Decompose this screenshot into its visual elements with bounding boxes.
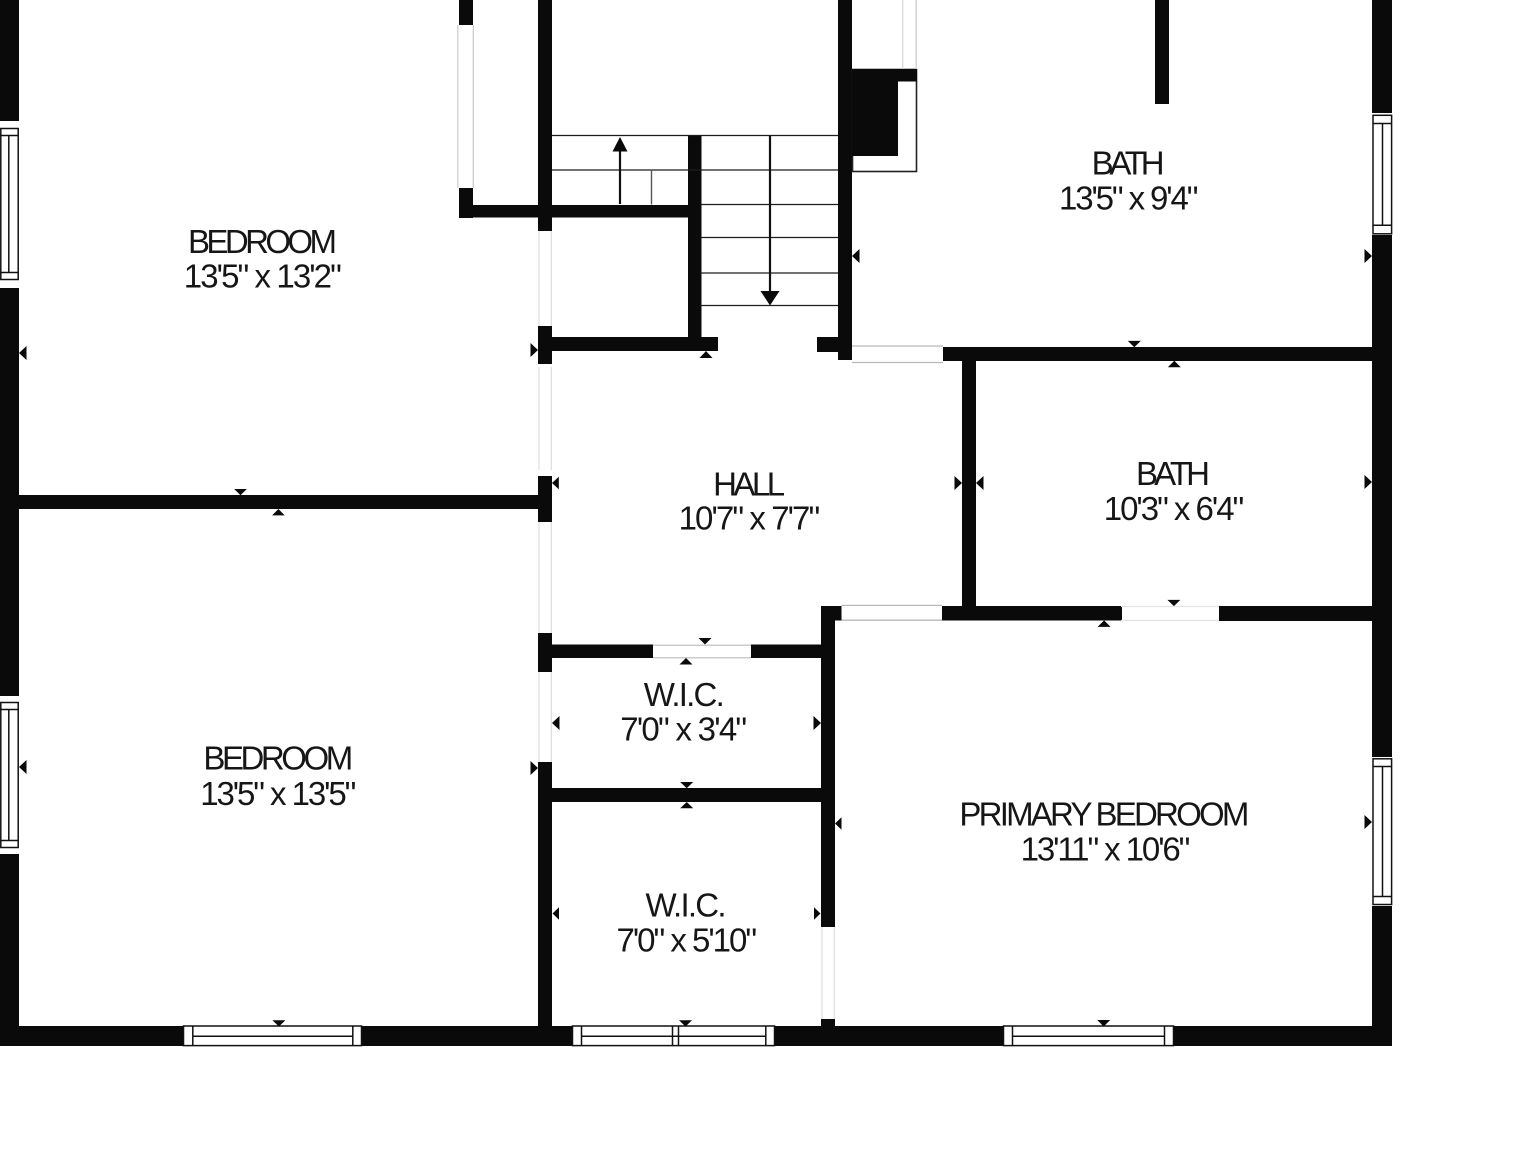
svg-text:13'5" x 13'2": 13'5" x 13'2" [184, 258, 342, 295]
svg-text:W.I.C.: W.I.C. [644, 676, 725, 713]
svg-text:HALL: HALL [713, 465, 785, 502]
svg-text:BEDROOM: BEDROOM [188, 223, 337, 260]
svg-text:7'0" x 5'10": 7'0" x 5'10" [617, 921, 758, 958]
svg-text:BATH: BATH [1092, 144, 1165, 181]
svg-text:W.I.C.: W.I.C. [646, 886, 727, 923]
svg-text:10'3" x 6'4": 10'3" x 6'4" [1104, 490, 1245, 527]
svg-text:BEDROOM: BEDROOM [203, 739, 353, 776]
svg-text:13'5" x 9'4": 13'5" x 9'4" [1059, 179, 1199, 216]
svg-text:10'7" x 7'7": 10'7" x 7'7" [679, 500, 821, 537]
svg-text:13'5" x 13'5": 13'5" x 13'5" [200, 775, 356, 812]
svg-text:BATH: BATH [1136, 455, 1210, 492]
svg-text:PRIMARY BEDROOM: PRIMARY BEDROOM [959, 796, 1249, 833]
svg-text:13'11" x 10'6": 13'11" x 10'6" [1021, 831, 1191, 868]
svg-text:7'0" x 3'4": 7'0" x 3'4" [620, 711, 747, 748]
